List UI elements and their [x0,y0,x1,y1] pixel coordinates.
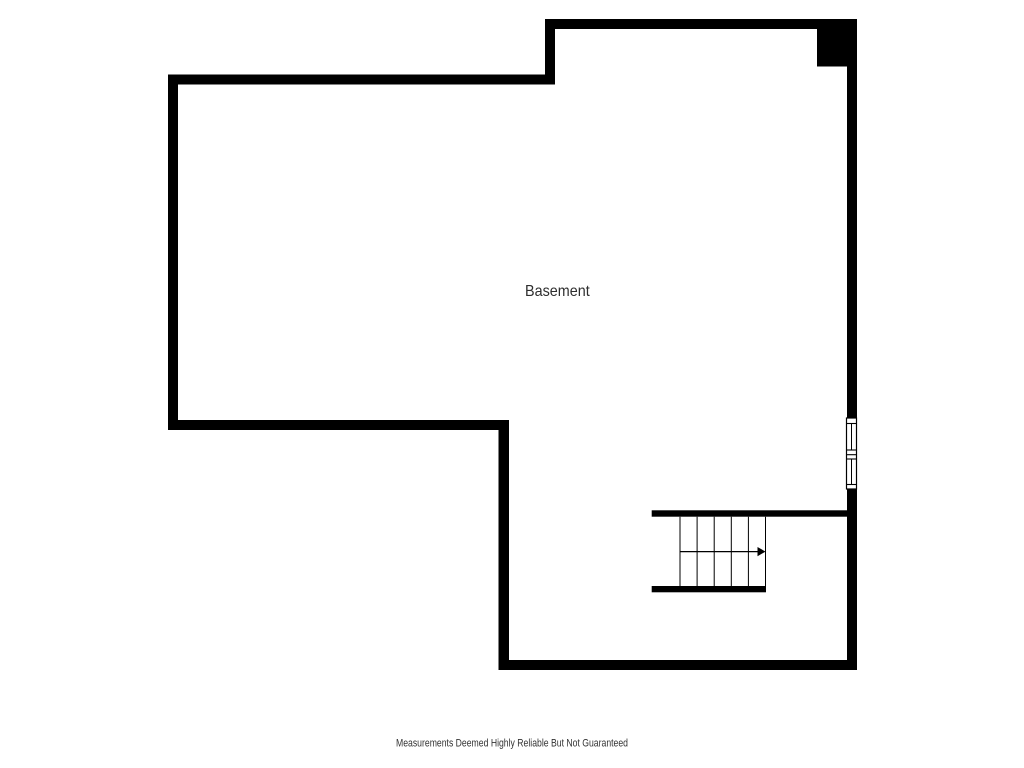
svg-text:Measurements Deemed Highly Rel: Measurements Deemed Highly Reliable But … [396,738,628,750]
svg-text:Basement: Basement [525,283,590,300]
